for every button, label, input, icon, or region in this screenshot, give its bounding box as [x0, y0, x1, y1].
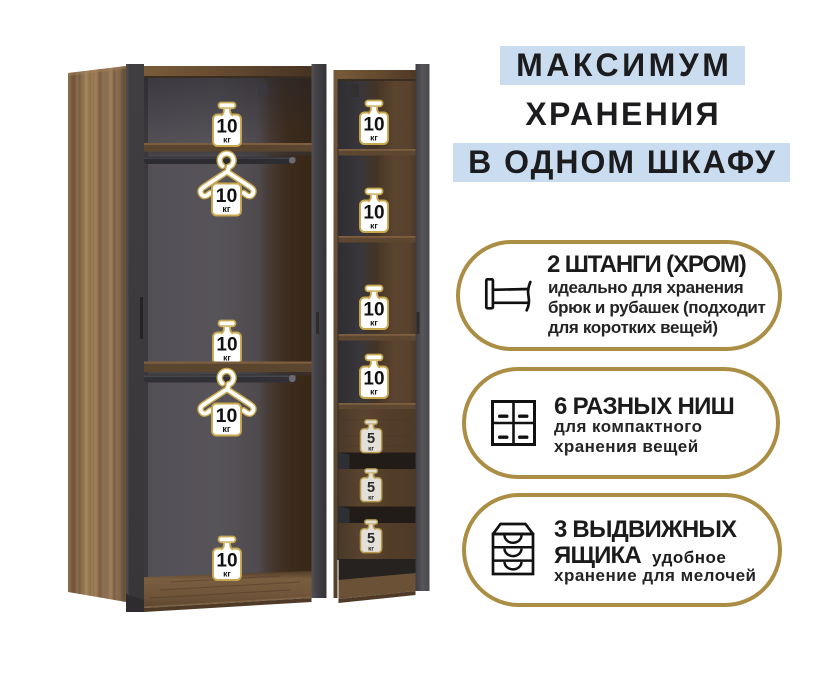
svg-text:кг: кг	[222, 424, 231, 434]
svg-text:кг: кг	[222, 204, 231, 214]
